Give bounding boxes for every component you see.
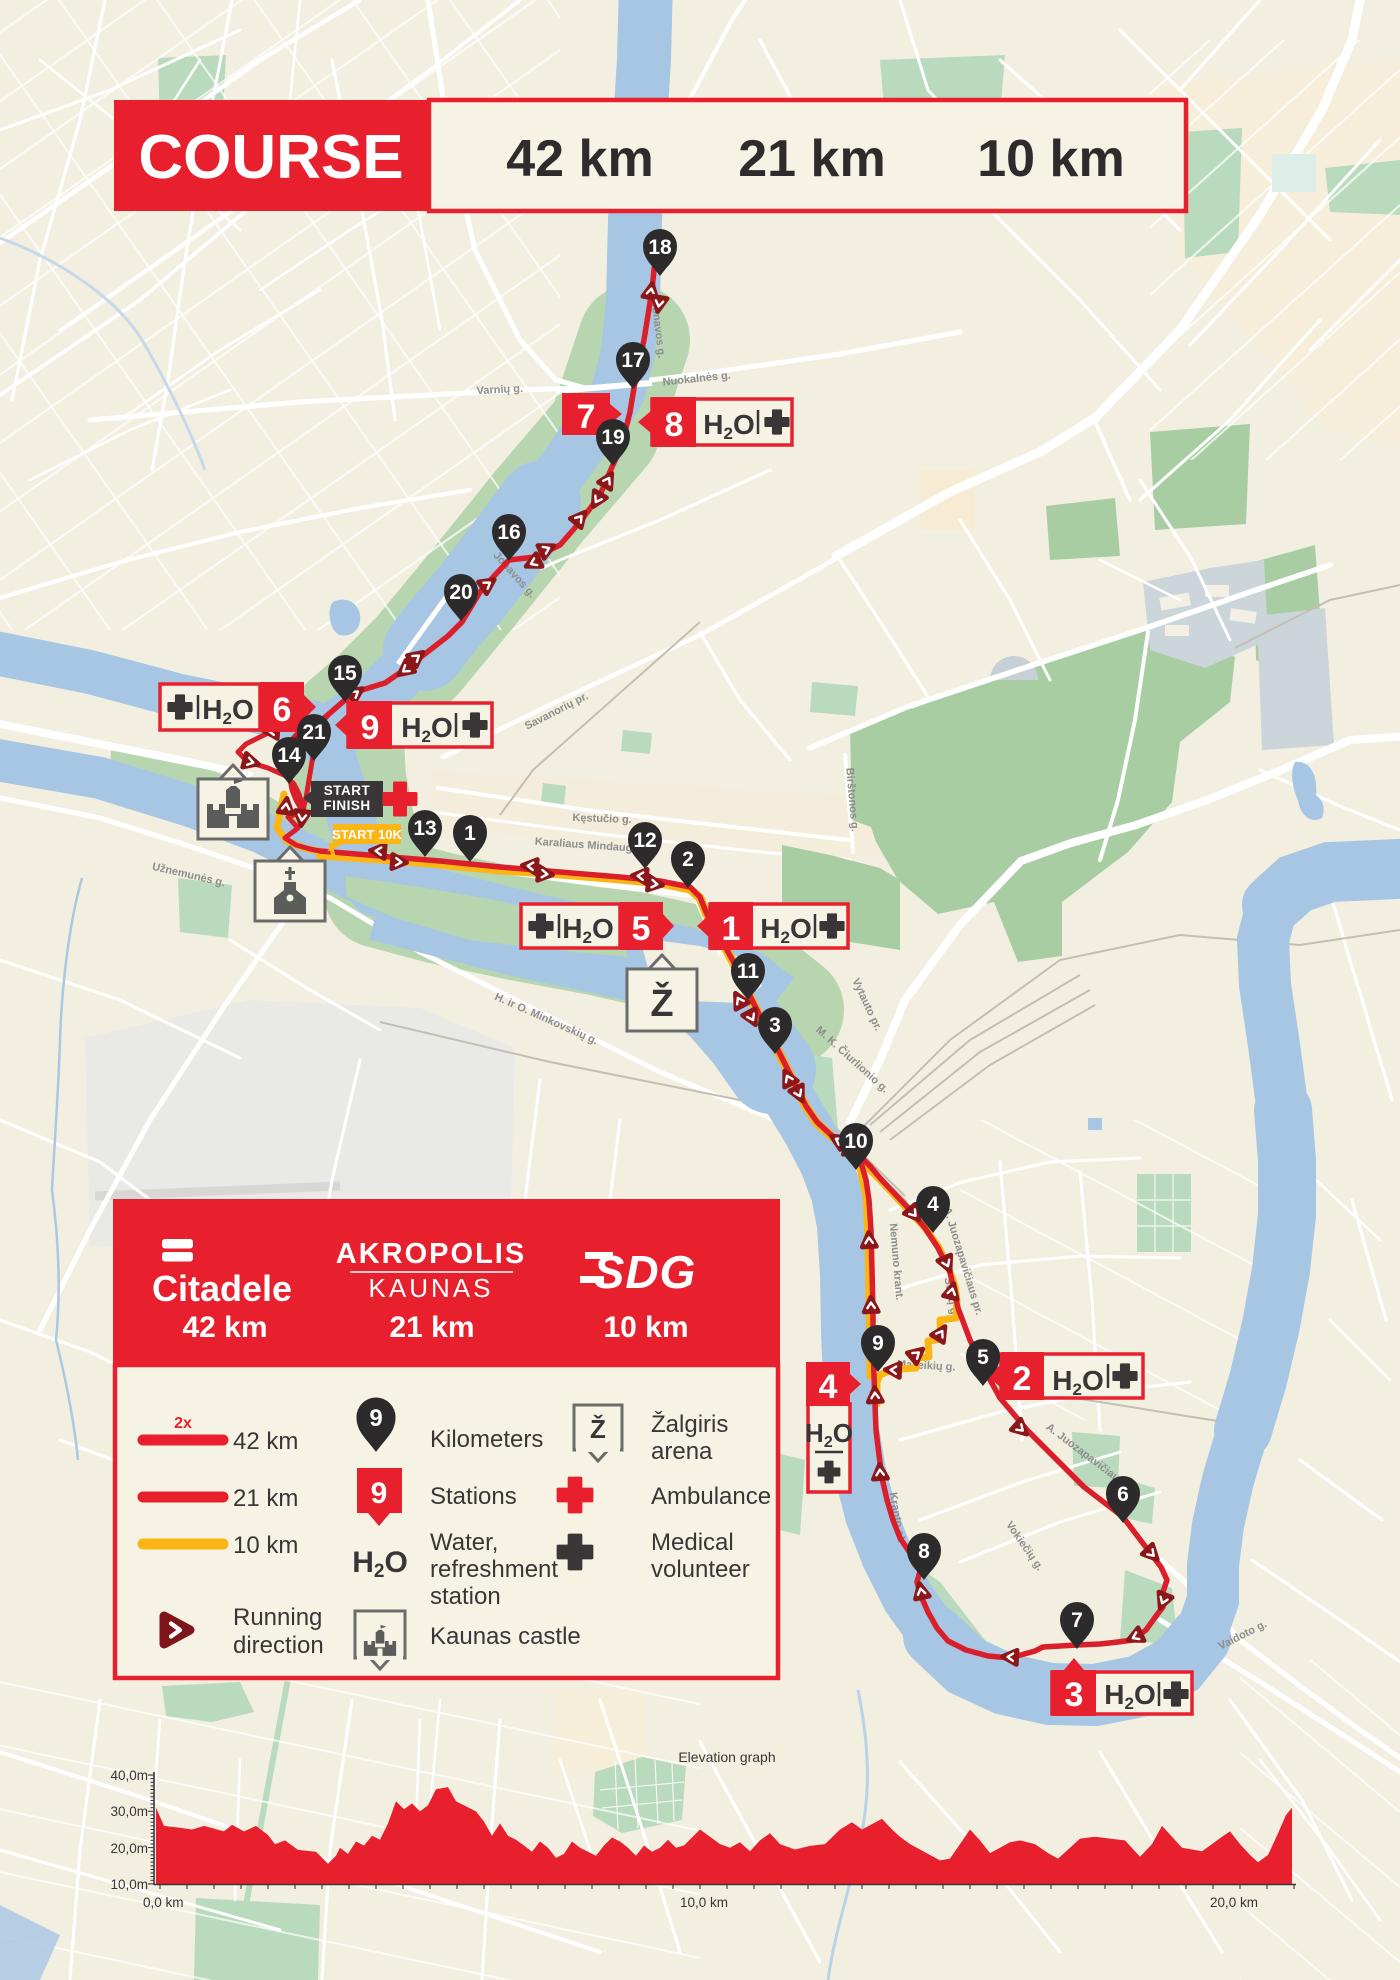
svg-text:START: START [324, 783, 371, 798]
svg-text:Ž: Ž [590, 1414, 606, 1444]
svg-text:Citadele: Citadele [152, 1268, 292, 1309]
svg-text:Running: Running [233, 1604, 322, 1631]
svg-text:10 km: 10 km [603, 1311, 688, 1344]
svg-text:40,0m: 40,0m [110, 1768, 148, 1783]
svg-text:Medical: Medical [651, 1529, 734, 1556]
svg-text:21 km: 21 km [738, 130, 885, 188]
svg-text:Ž: Ž [650, 981, 673, 1025]
svg-text:10 km: 10 km [977, 130, 1124, 188]
svg-text:Water,: Water, [430, 1529, 498, 1556]
svg-text:3: 3 [769, 1014, 781, 1037]
svg-text:10,0 km: 10,0 km [680, 1895, 728, 1910]
svg-text:4: 4 [819, 1368, 838, 1406]
svg-text:5: 5 [632, 910, 651, 948]
svg-text:8: 8 [665, 406, 684, 444]
svg-text:COURSE: COURSE [138, 123, 403, 192]
svg-text:14: 14 [277, 744, 301, 767]
svg-text:arena: arena [651, 1438, 713, 1465]
svg-text:direction: direction [233, 1632, 324, 1659]
svg-text:2: 2 [1013, 1360, 1032, 1398]
svg-text:Varnių g.: Varnių g. [476, 383, 523, 397]
svg-text:Ambulance: Ambulance [651, 1483, 771, 1510]
svg-text:10,0m: 10,0m [110, 1877, 148, 1892]
svg-text:42 km: 42 km [182, 1311, 267, 1344]
svg-text:AKROPOLIS: AKROPOLIS [336, 1238, 526, 1270]
svg-text:1: 1 [722, 910, 741, 948]
svg-text:1: 1 [464, 822, 476, 845]
svg-text:18: 18 [648, 236, 672, 259]
svg-text:21 km: 21 km [389, 1311, 474, 1344]
svg-text:9: 9 [361, 709, 380, 747]
svg-text:42 km: 42 km [506, 130, 653, 188]
svg-text:5: 5 [977, 1346, 989, 1369]
svg-text:Stations: Stations [430, 1483, 517, 1510]
svg-text:13: 13 [413, 817, 436, 840]
svg-text:17: 17 [621, 349, 644, 372]
svg-text:20,0m: 20,0m [110, 1841, 148, 1856]
svg-text:Žalgiris: Žalgiris [651, 1411, 728, 1438]
svg-text:9: 9 [872, 1332, 884, 1355]
svg-text:21: 21 [302, 721, 326, 744]
svg-text:Kilometers: Kilometers [430, 1426, 543, 1453]
svg-text:42 km: 42 km [233, 1428, 298, 1455]
svg-text:7: 7 [577, 398, 596, 436]
svg-text:21 km: 21 km [233, 1485, 298, 1512]
svg-text:volunteer: volunteer [651, 1556, 750, 1583]
svg-text:station: station [430, 1583, 501, 1610]
svg-text:3: 3 [1065, 1676, 1084, 1714]
svg-text:11: 11 [737, 960, 760, 983]
svg-text:2: 2 [682, 848, 694, 871]
svg-text:Elevation graph: Elevation graph [678, 1749, 775, 1765]
svg-text:10: 10 [844, 1130, 867, 1153]
svg-text:START 10K: START 10K [332, 827, 402, 842]
svg-text:2x: 2x [174, 1415, 192, 1432]
svg-text:9: 9 [369, 1405, 382, 1432]
svg-text:KAUNAS: KAUNAS [369, 1273, 494, 1303]
svg-text:30,0m: 30,0m [110, 1804, 148, 1819]
svg-text:FINISH: FINISH [323, 798, 370, 813]
svg-text:12: 12 [633, 829, 656, 852]
svg-text:20: 20 [449, 581, 472, 604]
svg-text:6: 6 [273, 691, 292, 729]
svg-text:16: 16 [497, 521, 520, 544]
svg-text:7: 7 [1071, 1609, 1083, 1632]
svg-text:9: 9 [371, 1477, 388, 1510]
svg-text:15: 15 [333, 662, 357, 685]
svg-text:Kaunas castle: Kaunas castle [430, 1623, 581, 1650]
svg-text:20,0 km: 20,0 km [1210, 1895, 1258, 1910]
svg-text:Kęstučio g.: Kęstučio g. [572, 812, 632, 826]
svg-text:refreshment: refreshment [430, 1556, 558, 1583]
svg-text:0,0 km: 0,0 km [143, 1895, 184, 1910]
svg-text:10 km: 10 km [233, 1532, 298, 1559]
svg-text:4: 4 [927, 1193, 939, 1216]
svg-text:19: 19 [601, 426, 624, 449]
svg-text:8: 8 [918, 1540, 930, 1563]
svg-text:6: 6 [1117, 1483, 1129, 1506]
